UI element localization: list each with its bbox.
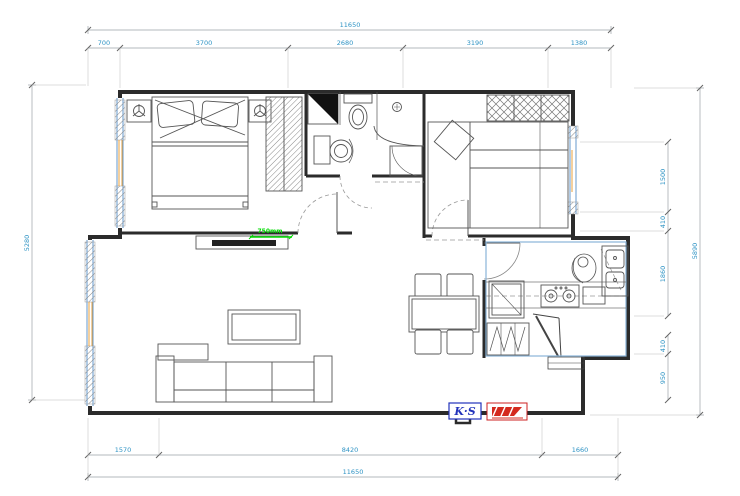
bathroom-counter bbox=[374, 126, 424, 146]
window-living-left bbox=[85, 240, 95, 406]
dim-bottom-seg-3: 1660 bbox=[572, 446, 589, 454]
vanity-basin bbox=[314, 136, 353, 164]
dim-left-overall: 5280 bbox=[23, 235, 31, 252]
bed2 bbox=[428, 120, 568, 228]
dimension-lines-left bbox=[28, 82, 86, 403]
double-bed bbox=[152, 97, 248, 209]
kitchen bbox=[486, 242, 628, 356]
dim-right-seg-1: 1500 bbox=[659, 169, 667, 186]
dim-right-seg-5: 950 bbox=[659, 372, 667, 384]
door-bathroom bbox=[340, 176, 424, 208]
ks-logo-text: K·S bbox=[453, 405, 475, 418]
door-bedroom2 bbox=[432, 200, 468, 236]
dim-top-overall: 11650 bbox=[340, 21, 361, 29]
tv-cabinet bbox=[196, 236, 288, 249]
dim-right-seg-3: 1860 bbox=[659, 266, 667, 283]
bathroom-fixtures bbox=[308, 92, 424, 176]
door-bedroom1 bbox=[298, 192, 337, 233]
bedroom1-furniture bbox=[127, 97, 302, 209]
chair bbox=[447, 274, 473, 298]
floor-drain-icon bbox=[393, 103, 402, 112]
dim-bottom-overall: 11650 bbox=[343, 468, 364, 476]
floorplan-canvas: 11650 700 3700 2680 3190 1380 1570 8420 … bbox=[0, 0, 740, 496]
red-flag-logo bbox=[487, 403, 527, 420]
dimension-lines-right bbox=[580, 85, 704, 418]
dimension-text-bottom: 1570 8420 1660 11650 bbox=[115, 446, 589, 476]
dimension-text-top: 11650 700 3700 2680 3190 1380 bbox=[98, 21, 587, 47]
dim-bottom-seg-2: 8420 bbox=[342, 446, 359, 454]
dim-top-seg-1: 700 bbox=[98, 39, 110, 47]
wardrobe-bedroom2 bbox=[487, 95, 569, 121]
chair bbox=[447, 330, 473, 354]
dim-top-seg-5: 1380 bbox=[571, 39, 588, 47]
dim-top-seg-3: 2680 bbox=[337, 39, 354, 47]
dimension-lines-top bbox=[85, 26, 614, 88]
outer-walls bbox=[90, 92, 628, 413]
dim-top-seg-4: 3190 bbox=[467, 39, 484, 47]
chair bbox=[415, 274, 441, 298]
nightstand-left bbox=[127, 100, 151, 122]
dim-top-seg-2: 3700 bbox=[196, 39, 213, 47]
wardrobe-bedroom1 bbox=[266, 97, 302, 191]
pillow bbox=[434, 120, 473, 159]
sink-swirl-decor bbox=[572, 254, 596, 283]
washing-machine bbox=[390, 146, 422, 176]
refrigerator bbox=[489, 281, 524, 318]
dining-set bbox=[409, 274, 479, 354]
lower-cabinet bbox=[487, 323, 529, 355]
kitchen-sink bbox=[602, 246, 628, 296]
ks-logo: K·S bbox=[449, 403, 481, 419]
living-room-furniture bbox=[156, 236, 332, 402]
chair bbox=[415, 330, 441, 354]
coffee-table bbox=[228, 310, 300, 344]
window-bedroom1-left bbox=[115, 98, 125, 228]
tv bbox=[212, 240, 276, 246]
shower-corner-icon bbox=[308, 94, 338, 124]
green-label: 750mm bbox=[257, 228, 282, 235]
dim-right-seg-4: 410 bbox=[659, 340, 667, 352]
entry-door bbox=[533, 314, 584, 369]
dim-bottom-seg-1: 1570 bbox=[115, 446, 132, 454]
sofa bbox=[156, 344, 332, 402]
dining-table bbox=[409, 296, 479, 332]
dim-right-seg-2: 410 bbox=[659, 216, 667, 228]
dim-right-overall: 5890 bbox=[691, 243, 699, 260]
floorplan-svg: 11650 700 3700 2680 3190 1380 1570 8420 … bbox=[0, 0, 740, 496]
bedroom2-furniture bbox=[428, 95, 569, 228]
dimension-text-right: 1500 410 1860 410 950 5890 bbox=[659, 169, 699, 384]
toilet-icon bbox=[344, 94, 372, 129]
window-bedroom2-right bbox=[568, 126, 578, 214]
door-kitchen bbox=[484, 243, 520, 279]
